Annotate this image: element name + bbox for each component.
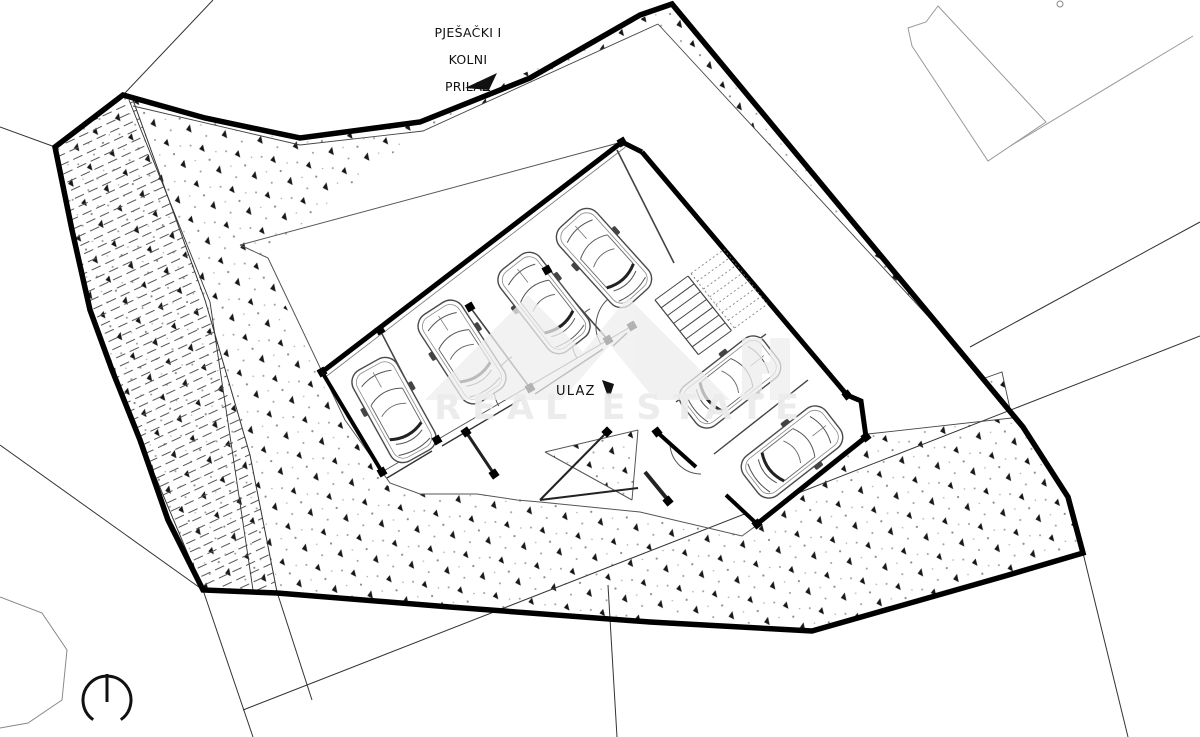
access-label-line2: KOLNI bbox=[449, 52, 488, 67]
wall-stub-caps bbox=[460, 426, 673, 506]
neighbor-parcel-pentagon bbox=[0, 597, 67, 728]
neighbor-building-outline bbox=[908, 6, 1046, 161]
access-label-line3: PRILAZ bbox=[445, 79, 491, 94]
entrance-label: ULAZ bbox=[556, 384, 596, 399]
access-label: PJEŠAČKI I KOLNI PRILAZ bbox=[403, 26, 533, 94]
access-label-line1: PJEŠAČKI I bbox=[435, 25, 502, 40]
site-plan-drawing bbox=[0, 0, 1200, 737]
site-plan-page: REAL ESTATE PJEŠAČKI I KOLNI PRILAZ ULAZ bbox=[0, 0, 1200, 737]
retaining-wall-stubs bbox=[466, 432, 668, 500]
north-arrow-icon bbox=[83, 674, 131, 720]
watermark-text: REAL ESTATE bbox=[402, 388, 842, 428]
survey-point-icon bbox=[1057, 1, 1063, 7]
